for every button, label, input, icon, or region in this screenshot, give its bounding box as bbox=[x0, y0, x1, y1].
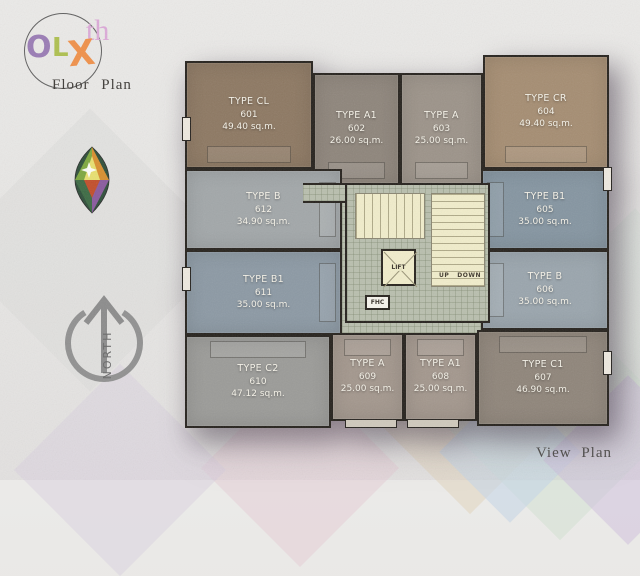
unit-606-area: 35.00 sq.m. bbox=[518, 296, 572, 308]
unit-603: TYPE A 603 25.00 sq.m. bbox=[400, 73, 483, 185]
unit-602-label: TYPE A1 602 26.00 sq.m. bbox=[330, 110, 384, 147]
unit-612-label: TYPE B 612 34.90 sq.m. bbox=[237, 191, 291, 228]
unit-607: TYPE C1 607 46.90 sq.m. bbox=[477, 330, 609, 426]
olx-watermark-logo: th O L X Floor Plan bbox=[0, 0, 170, 110]
balcony bbox=[407, 419, 459, 428]
unit-607-label: TYPE C1 607 46.90 sq.m. bbox=[516, 359, 570, 396]
logo-letter-x: X bbox=[66, 33, 97, 76]
unit-608-label: TYPE A1 608 25.00 sq.m. bbox=[414, 358, 468, 395]
page-title: Floor Plan bbox=[52, 77, 132, 94]
unit-608-number: 608 bbox=[414, 371, 468, 383]
unit-603-label: TYPE A 603 25.00 sq.m. bbox=[415, 110, 469, 147]
unit-610-area: 47.12 sq.m. bbox=[231, 388, 285, 400]
unit-610: TYPE C2 610 47.12 sq.m. bbox=[185, 335, 331, 428]
unit-612: TYPE B 612 34.90 sq.m. bbox=[185, 169, 342, 250]
stairs-down-label: DOWN bbox=[457, 272, 481, 279]
unit-606: TYPE B 606 35.00 sq.m. bbox=[481, 250, 609, 330]
unit-611-number: 611 bbox=[237, 287, 291, 299]
unit-605-type: TYPE B1 bbox=[518, 191, 572, 204]
unit-601: TYPE CL 601 49.40 sq.m. bbox=[185, 61, 313, 169]
lift-label: LIFT bbox=[390, 264, 406, 271]
unit-602-type: TYPE A1 bbox=[330, 110, 384, 123]
unit-611-area: 35.00 sq.m. bbox=[237, 299, 291, 311]
unit-601-area: 49.40 sq.m. bbox=[222, 121, 276, 133]
unit-607-type: TYPE C1 bbox=[516, 359, 570, 372]
view-plan-label[interactable]: View Plan bbox=[536, 445, 612, 462]
unit-607-area: 46.90 sq.m. bbox=[516, 384, 570, 396]
unit-605-number: 605 bbox=[518, 204, 572, 216]
fire-hose-cabinet: FHC bbox=[365, 295, 390, 310]
unit-612-area: 34.90 sq.m. bbox=[237, 216, 291, 228]
unit-606-label: TYPE B 606 35.00 sq.m. bbox=[518, 271, 572, 308]
gem-icon bbox=[72, 146, 112, 214]
unit-606-number: 606 bbox=[518, 284, 572, 296]
unit-604-type: TYPE CR bbox=[519, 93, 573, 106]
unit-611-type: TYPE B1 bbox=[237, 274, 291, 287]
balcony bbox=[603, 351, 612, 375]
balcony bbox=[182, 117, 191, 141]
unit-603-type: TYPE A bbox=[415, 110, 469, 123]
unit-605-label: TYPE B1 605 35.00 sq.m. bbox=[518, 191, 572, 228]
unit-605: TYPE B1 605 35.00 sq.m. bbox=[481, 169, 609, 250]
unit-611: TYPE B1 611 35.00 sq.m. bbox=[185, 250, 342, 335]
unit-607-number: 607 bbox=[516, 372, 570, 384]
unit-609-label: TYPE A 609 25.00 sq.m. bbox=[341, 358, 395, 395]
balcony bbox=[345, 419, 397, 428]
unit-610-number: 610 bbox=[231, 376, 285, 388]
building-core: UP DOWN LIFT FHC bbox=[345, 183, 490, 323]
unit-608-type: TYPE A1 bbox=[414, 358, 468, 371]
unit-605-area: 35.00 sq.m. bbox=[518, 216, 572, 228]
unit-601-type: TYPE CL bbox=[222, 96, 276, 109]
unit-601-label: TYPE CL 601 49.40 sq.m. bbox=[222, 96, 276, 133]
corridor bbox=[303, 183, 347, 203]
unit-609-number: 609 bbox=[341, 371, 395, 383]
unit-601-number: 601 bbox=[222, 109, 276, 121]
floor-plan: TYPE CL 601 49.40 sq.m. TYPE A1 602 26.0… bbox=[185, 55, 609, 428]
unit-609-area: 25.00 sq.m. bbox=[341, 383, 395, 395]
unit-603-area: 25.00 sq.m. bbox=[415, 135, 469, 147]
unit-612-type: TYPE B bbox=[237, 191, 291, 204]
unit-611-label: TYPE B1 611 35.00 sq.m. bbox=[237, 274, 291, 311]
unit-606-type: TYPE B bbox=[518, 271, 572, 284]
unit-602-number: 602 bbox=[330, 123, 384, 135]
north-arrow-icon: NORTH bbox=[58, 293, 150, 393]
unit-612-number: 612 bbox=[237, 204, 291, 216]
stairwell-main: UP DOWN bbox=[431, 193, 485, 287]
lift-shaft: LIFT bbox=[381, 249, 416, 286]
unit-610-label: TYPE C2 610 47.12 sq.m. bbox=[231, 363, 285, 400]
balcony bbox=[182, 267, 191, 291]
balcony bbox=[603, 167, 612, 191]
unit-609: TYPE A 609 25.00 sq.m. bbox=[331, 333, 404, 421]
unit-610-type: TYPE C2 bbox=[231, 363, 285, 376]
unit-604-number: 604 bbox=[519, 106, 573, 118]
unit-604: TYPE CR 604 49.40 sq.m. bbox=[483, 55, 609, 169]
logo-letter-o: O bbox=[26, 30, 52, 65]
unit-604-label: TYPE CR 604 49.40 sq.m. bbox=[519, 93, 573, 130]
unit-604-area: 49.40 sq.m. bbox=[519, 118, 573, 130]
unit-602-area: 26.00 sq.m. bbox=[330, 135, 384, 147]
unit-608: TYPE A1 608 25.00 sq.m. bbox=[404, 333, 477, 421]
unit-608-area: 25.00 sq.m. bbox=[414, 383, 468, 395]
stairwell-secondary bbox=[355, 193, 425, 239]
stairs-up-label: UP bbox=[439, 272, 449, 279]
unit-609-type: TYPE A bbox=[341, 358, 395, 371]
compass-label: NORTH bbox=[101, 331, 114, 380]
unit-603-number: 603 bbox=[415, 123, 469, 135]
